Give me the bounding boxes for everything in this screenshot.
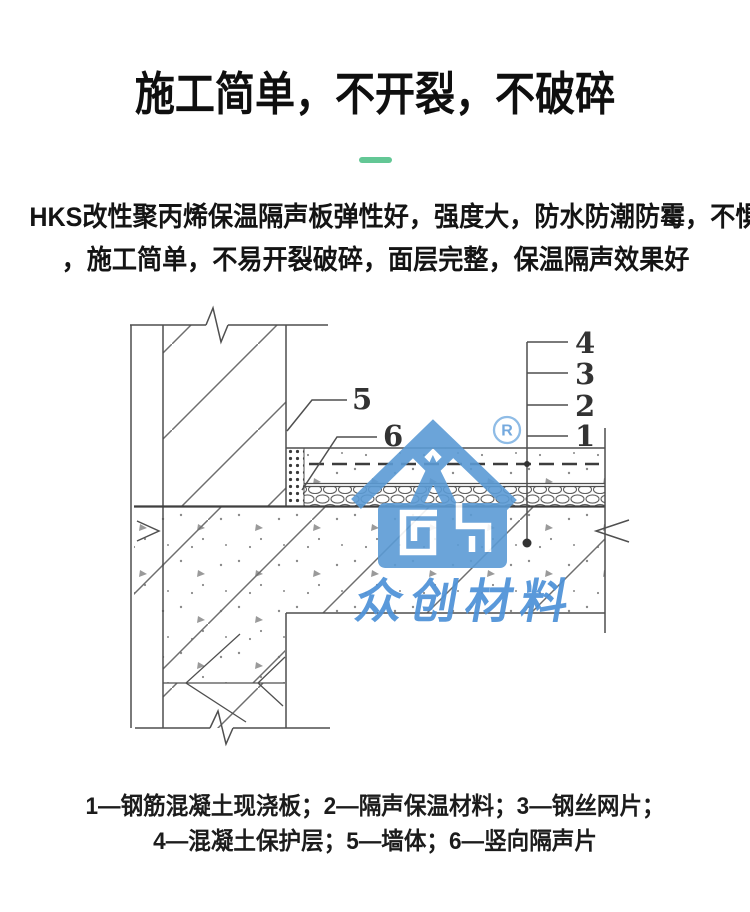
watermark-brand: 众创材料 — [351, 576, 580, 629]
callout-6-label: 6 — [383, 419, 403, 453]
callout-2-label: 2 — [575, 389, 595, 423]
leader-line-5 — [287, 400, 347, 431]
legend-line-2: 4—混凝土保护层；5—墙体；6—竖向隔声片 — [153, 824, 597, 859]
promo-page: 施工简单，不开裂，不破碎 HKS改性聚丙烯保温隔声板弹性好，强度大，防水防潮防霉… — [0, 0, 750, 912]
stem-anchor-dot-lower — [523, 539, 532, 548]
product-description: HKS改性聚丙烯保温隔声板弹性好，强度大，防水防潮防霉，不惧重压 ，施工简单，不… — [0, 196, 750, 282]
callout-5-label: 5 — [352, 382, 372, 416]
callout-branches — [527, 342, 568, 436]
page-title-wrap: 施工简单，不开裂，不破碎 — [0, 58, 750, 124]
diagram-legend: 1—钢筋混凝土现浇板；2—隔声保温材料；3—钢丝网片； 4—混凝土保护层；5—墙… — [0, 789, 750, 859]
stem-anchor-dot-upper — [524, 461, 530, 467]
registered-trademark: R — [494, 417, 520, 443]
callout-1-label: 1 — [575, 419, 595, 453]
registered-r-letter: R — [501, 423, 513, 440]
callout-labels: 4 3 2 1 5 6 — [352, 326, 595, 453]
description-line-2: ，施工简单，不易开裂破碎，面层完整，保温隔声效果好 — [61, 239, 689, 282]
description-line-1: HKS改性聚丙烯保温隔声板弹性好，强度大，防水防潮防霉，不惧重压 — [29, 196, 750, 239]
title-divider — [359, 157, 392, 163]
callout-3-label: 3 — [575, 357, 595, 391]
callout-4-label: 4 — [575, 326, 595, 360]
wall-hatch-upper — [163, 325, 286, 507]
legend-line-1: 1—钢筋混凝土现浇板；2—隔声保温材料；3—钢丝网片； — [85, 789, 664, 824]
watermark-brand-text: 众创材料 — [351, 576, 580, 629]
construction-detail-diagram: 4 3 2 1 5 6 R 众创材料 — [100, 290, 655, 785]
page-title: 施工简单，不开裂，不破碎 — [135, 58, 615, 124]
vertical-sound-strip — [286, 448, 304, 507]
wall-hatch-lower — [163, 683, 285, 728]
